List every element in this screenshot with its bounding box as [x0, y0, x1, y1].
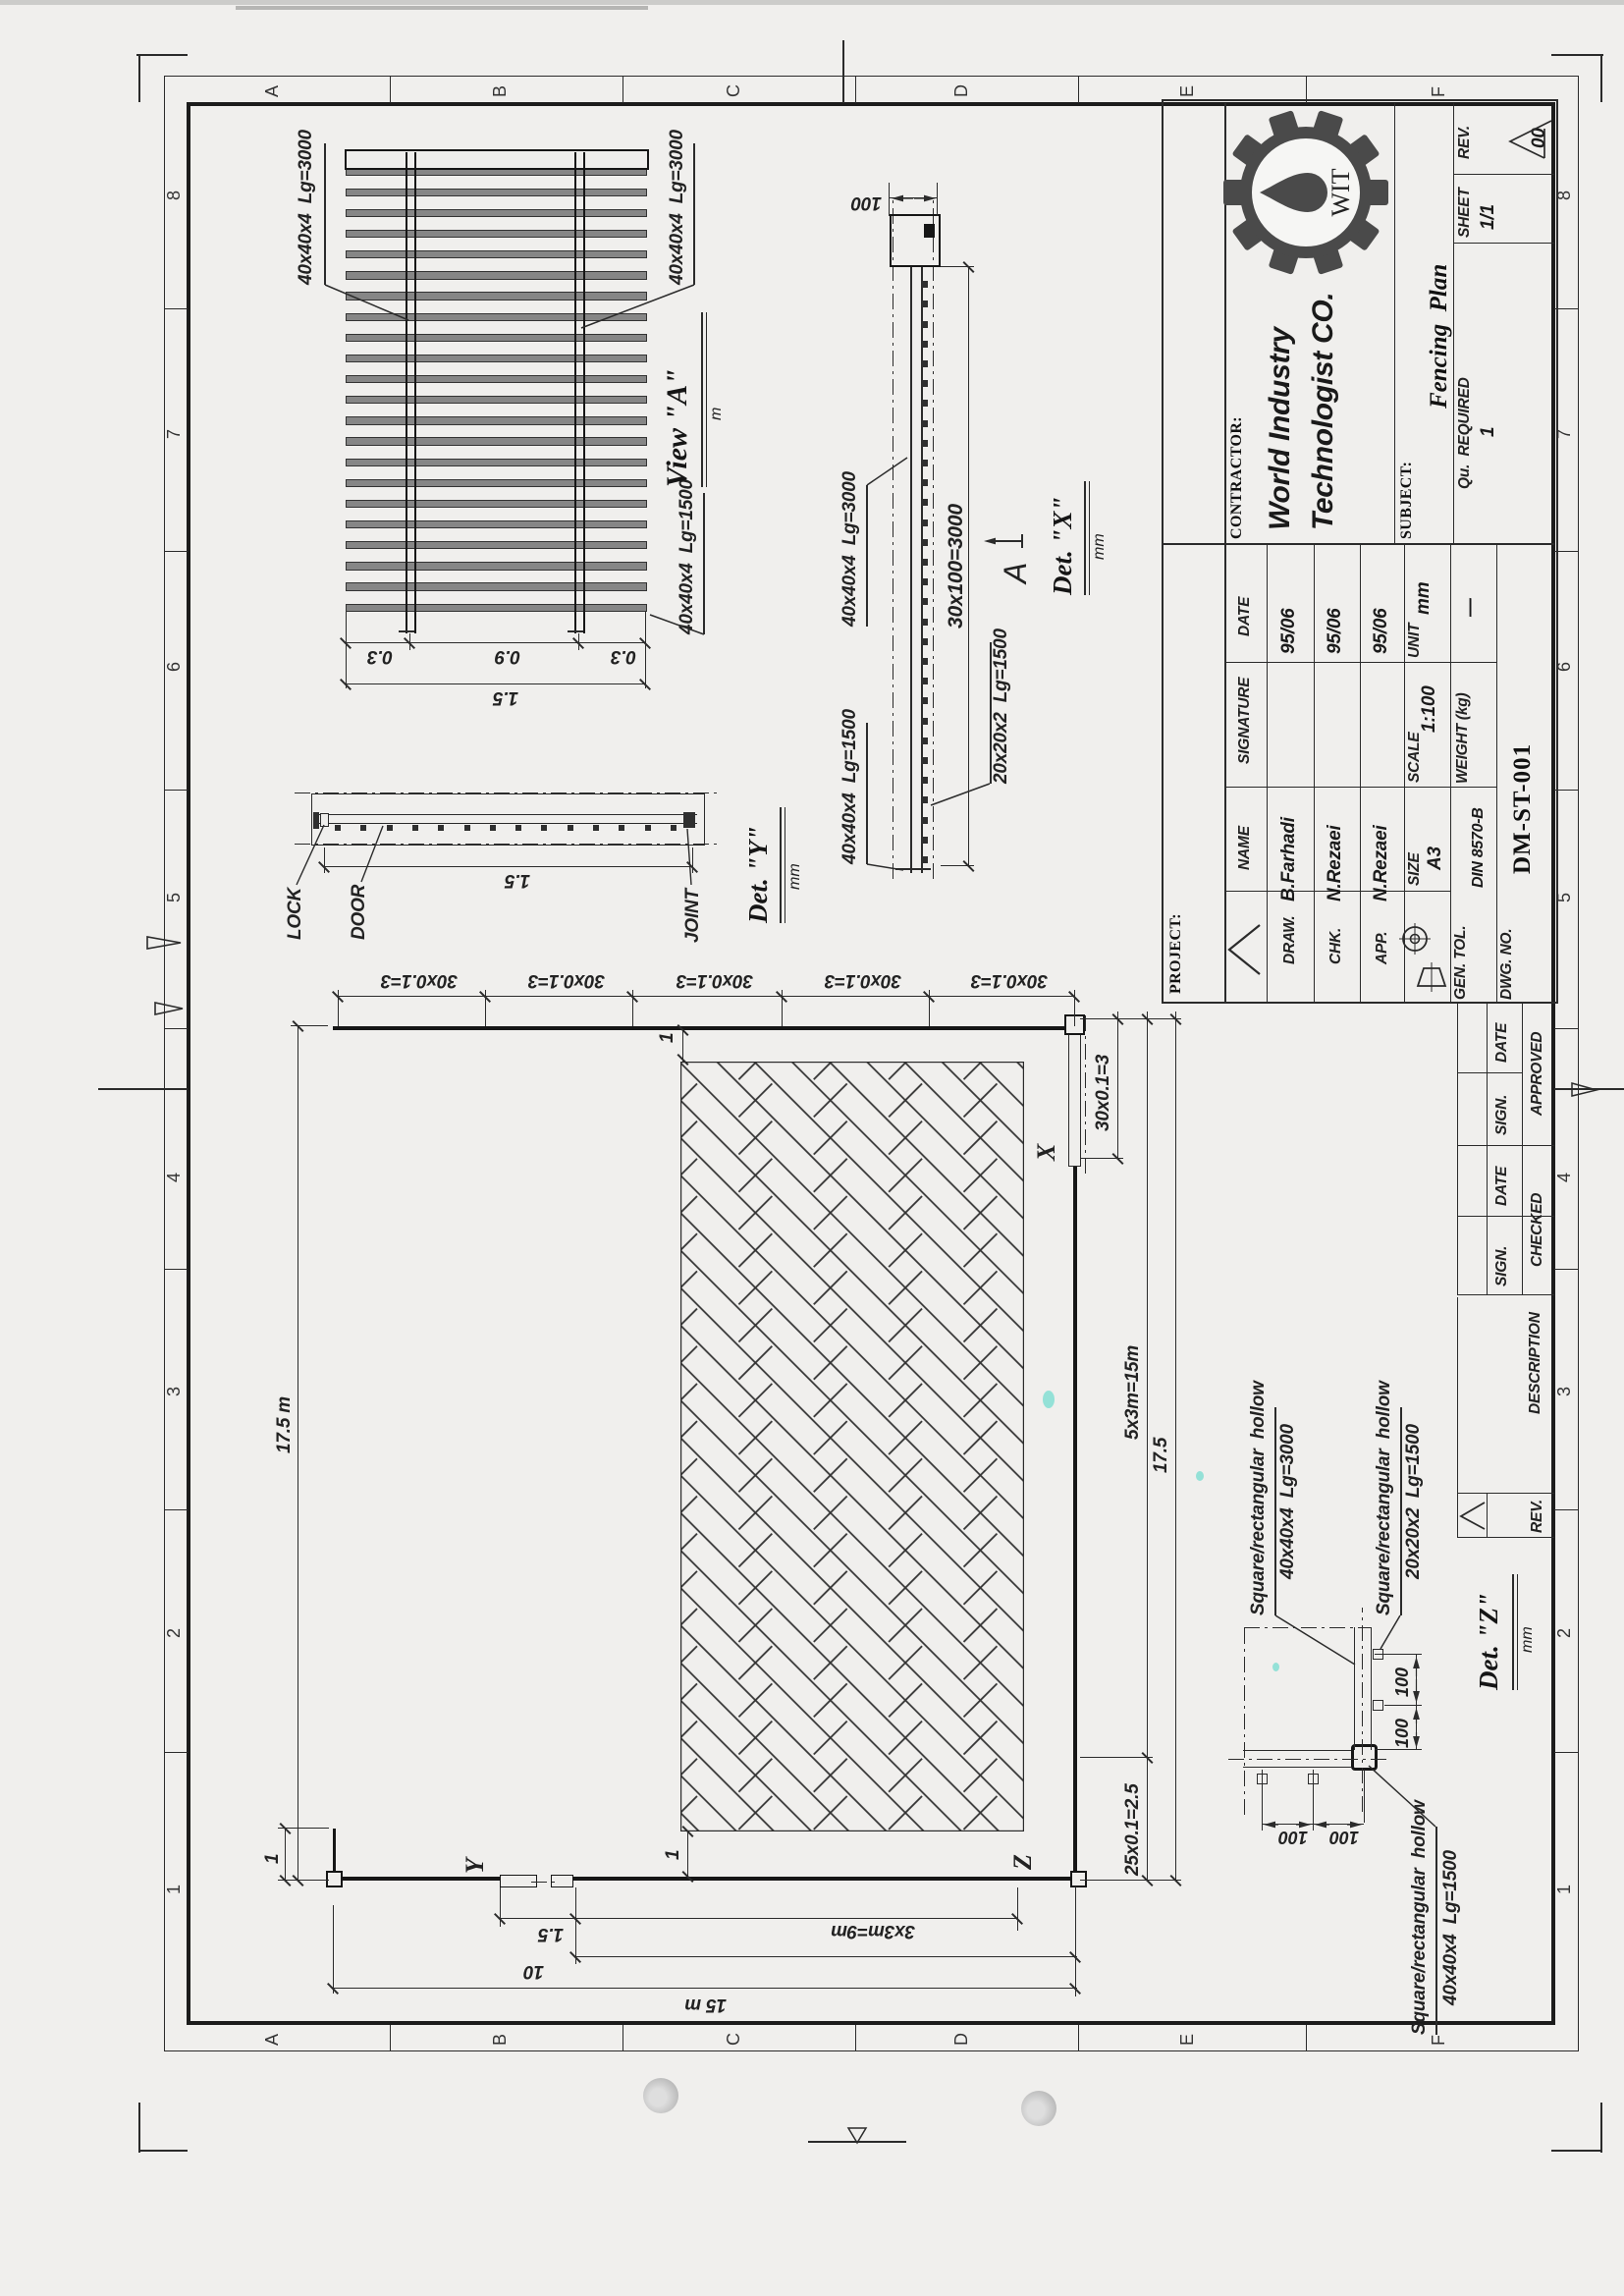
svg-text:WIT: WIT: [1326, 168, 1355, 216]
